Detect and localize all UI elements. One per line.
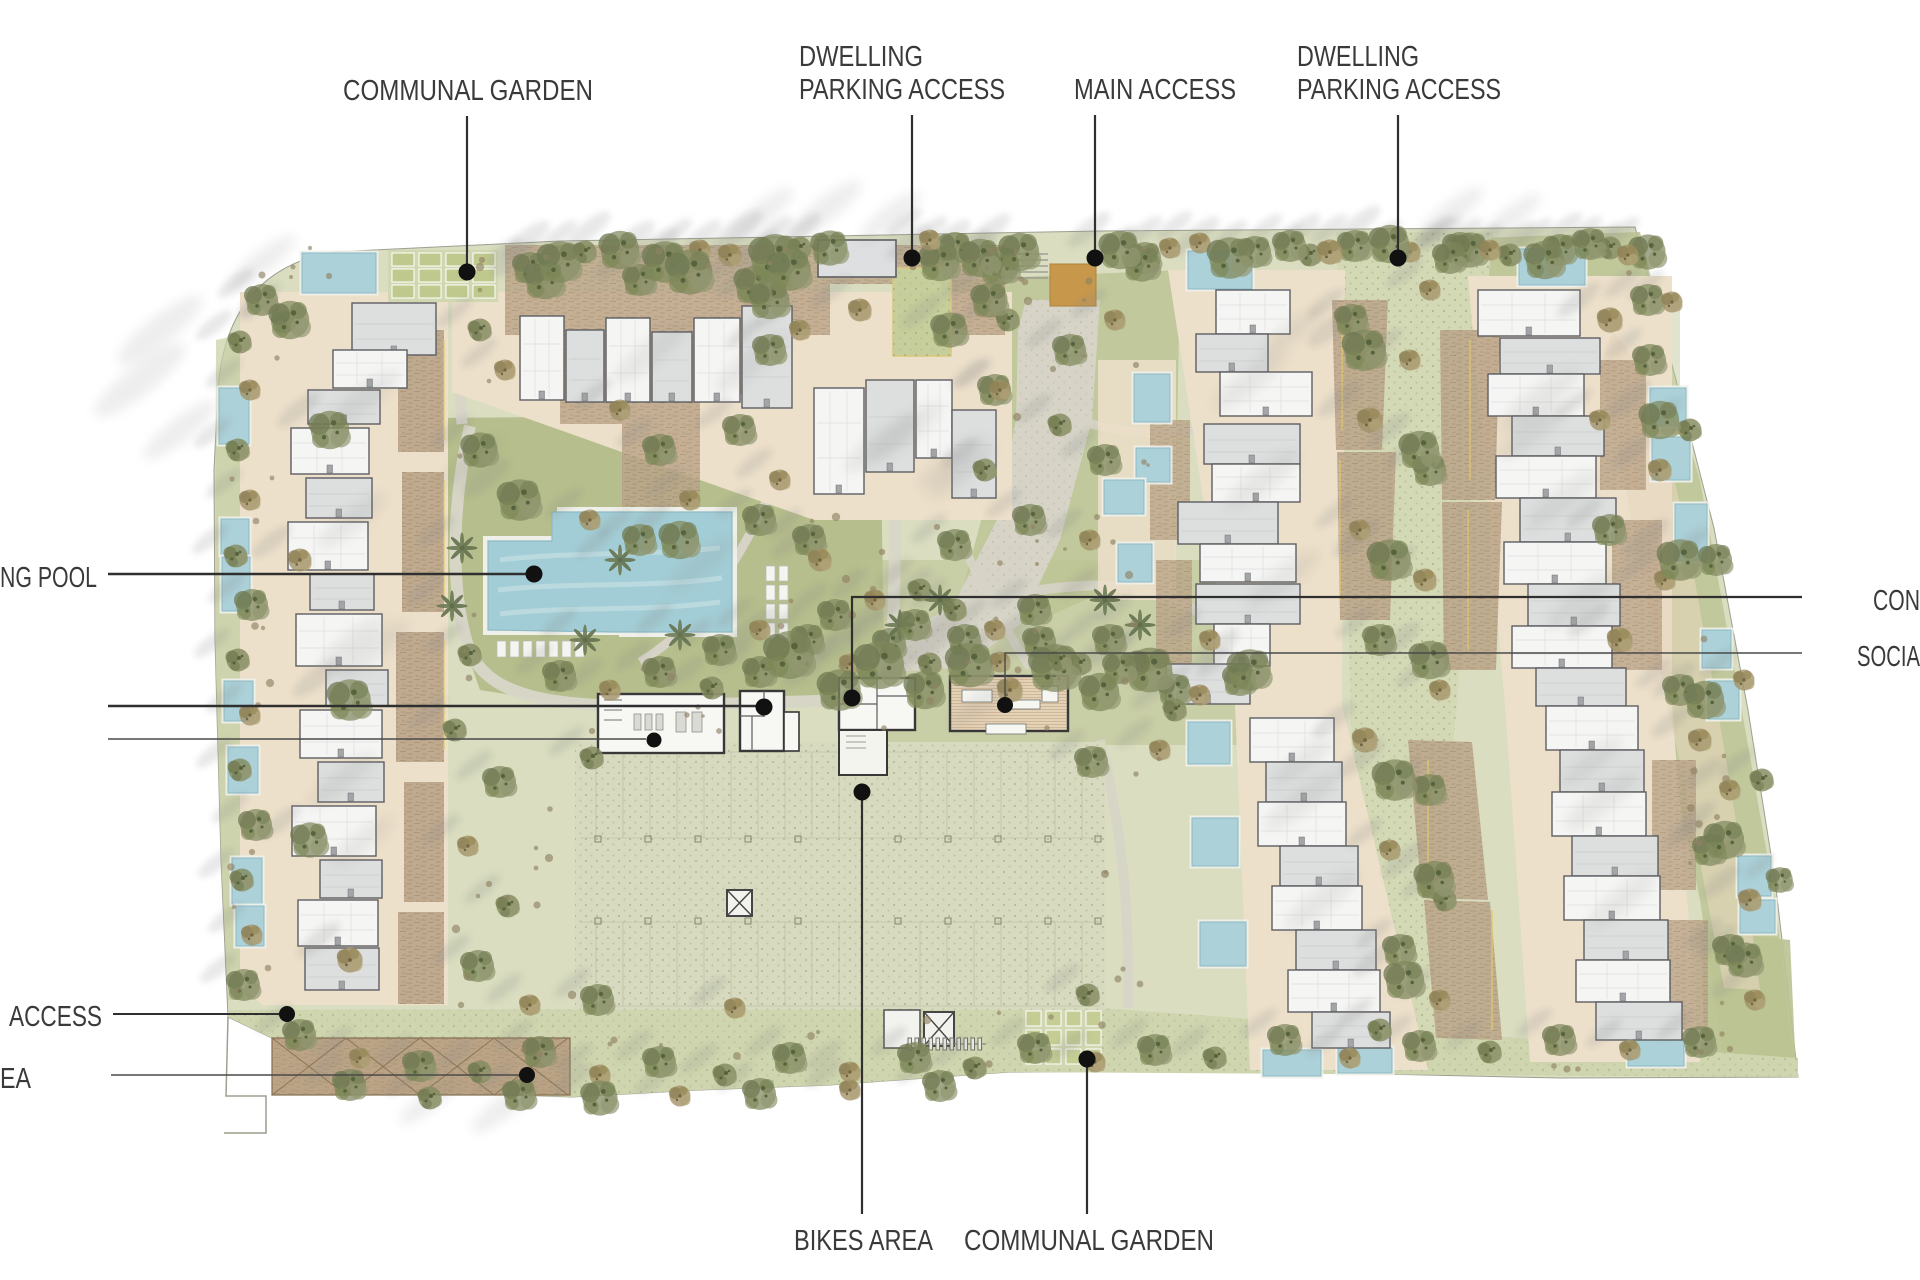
svg-text:PARKING ACCESS: PARKING ACCESS [799, 74, 1005, 106]
svg-text:BIKES AREA: BIKES AREA [794, 1225, 934, 1257]
svg-text:ACCESS: ACCESS [9, 1001, 102, 1033]
svg-text:DWELLING: DWELLING [1297, 41, 1419, 73]
svg-text:SOCIA: SOCIA [1857, 641, 1920, 673]
svg-text:NG POOL: NG POOL [0, 562, 97, 594]
svg-text:PARKING ACCESS: PARKING ACCESS [1297, 74, 1501, 106]
svg-text:CON: CON [1873, 585, 1920, 617]
svg-text:COMMUNAL GARDEN: COMMUNAL GARDEN [343, 75, 593, 107]
svg-text:EA: EA [0, 1063, 32, 1095]
svg-text:DWELLING: DWELLING [799, 41, 923, 73]
svg-text:MAIN ACCESS: MAIN ACCESS [1074, 74, 1236, 106]
svg-text:COMMUNAL GARDEN: COMMUNAL GARDEN [964, 1225, 1214, 1257]
